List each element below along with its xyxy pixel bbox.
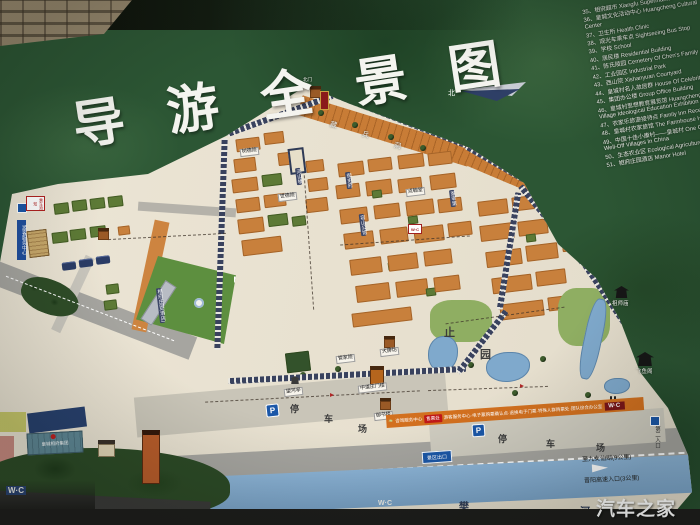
tour-bus <box>62 261 77 271</box>
tree-bed <box>51 231 68 244</box>
yushifu-sign: 御史府 <box>345 172 352 190</box>
group-building: 皇城相府集团 <box>26 431 83 456</box>
garden-pond <box>486 352 530 382</box>
bottom-shadow <box>0 509 700 525</box>
route-arrow <box>330 393 334 397</box>
dianhantang-sign: 点翰堂 <box>406 187 426 197</box>
second-entrance-icon <box>650 416 660 426</box>
tree <box>388 134 394 140</box>
left-wc-sign: W·C <box>6 486 26 495</box>
building-block <box>395 278 429 298</box>
dapaifang-icon <box>384 336 395 348</box>
building-block <box>367 157 392 173</box>
tree-grove <box>285 351 311 374</box>
parking-sign: P <box>265 403 279 417</box>
exit-guide-text: 景区出口 <box>427 453 447 461</box>
visitor-center-banner: 游客服务中心 <box>17 220 26 260</box>
courtyard <box>372 189 383 198</box>
building-block <box>349 256 383 276</box>
tree <box>335 366 341 372</box>
courtyard <box>526 233 537 242</box>
feiyuge-icon <box>636 352 654 366</box>
title-char: 游 <box>161 63 224 145</box>
building-block <box>405 198 435 216</box>
parking-char: 停 <box>498 432 507 445</box>
temple-icon <box>98 440 115 457</box>
title-char: 景 <box>349 35 412 117</box>
building-block <box>551 213 577 230</box>
building-block <box>427 151 452 167</box>
memorial-archway-icon <box>98 228 109 240</box>
ticket-office-badge: 售票处 <box>424 414 442 423</box>
brick-wall-corner <box>0 0 132 46</box>
title-char: 图 <box>443 21 506 103</box>
leaf-icon: ❧ <box>388 418 394 425</box>
building-block <box>423 248 453 266</box>
shudeyuan-sign: 树德院 <box>240 147 260 157</box>
second-entrance-label: 第二入口 <box>653 426 661 448</box>
tree-bed <box>53 202 69 215</box>
parking-sign: P <box>472 424 486 438</box>
group-building-text: 皇城相府集团 <box>27 440 83 449</box>
tour-bus <box>96 255 111 265</box>
building-block <box>355 282 391 303</box>
tree-bed <box>107 195 123 208</box>
route-arrow <box>520 384 524 388</box>
parking-char: 场 <box>596 441 605 454</box>
building-block <box>561 237 584 253</box>
building-block <box>307 177 328 192</box>
building-block <box>351 306 412 327</box>
tree <box>420 145 426 151</box>
zushimiao-icon <box>614 286 629 298</box>
parking-letter: P <box>476 426 482 435</box>
tree-bed <box>103 299 117 311</box>
building-block <box>397 152 425 169</box>
village-building <box>27 407 87 434</box>
tree-bed <box>71 199 87 212</box>
heshanlou-sign: 河山楼 <box>295 168 302 186</box>
building-block <box>231 176 259 193</box>
tour-bus <box>79 258 94 268</box>
village-yard <box>0 412 26 432</box>
cangbingdong-band-east <box>451 143 548 198</box>
building-block <box>477 198 509 217</box>
building-block <box>387 252 419 272</box>
courtyard <box>261 173 282 187</box>
watermark: 汽车之家 <box>596 494 676 521</box>
zushimiao-label: 祖师庙 <box>612 299 629 307</box>
parking-char: 场 <box>358 422 367 435</box>
building-block <box>241 236 283 257</box>
shideyuan-sign: 世德院 <box>278 192 298 202</box>
tree <box>512 390 518 396</box>
road-wc-label: W·C <box>378 500 392 507</box>
courtyard <box>267 213 288 227</box>
feiyuge-label: 飞鱼阁 <box>636 367 653 375</box>
tour-route <box>302 150 314 310</box>
direction-arrow <box>592 464 608 473</box>
zhongzaidi-sign: 冢宰第 <box>449 190 456 208</box>
building-block <box>543 190 571 207</box>
parking-char: 车 <box>324 412 333 425</box>
notice-sign: 乘车须知 <box>26 196 45 211</box>
building-block <box>433 274 461 292</box>
cangbingdong-char2: 兵 <box>361 129 370 140</box>
building-block <box>343 230 375 250</box>
dapaifang-sign: 大牌坊 <box>380 347 400 357</box>
inner-wc-sign: W·C <box>408 224 422 234</box>
building-block <box>237 216 265 234</box>
pagoda-tower <box>142 430 160 484</box>
tree-bed <box>89 197 105 210</box>
group-logo <box>51 434 56 439</box>
tree <box>540 356 546 362</box>
cangbingdong-char3: 洞 <box>393 140 402 151</box>
building-block <box>235 197 261 214</box>
visitor-banner-text: 游客服务中心 <box>21 225 27 255</box>
service-bar-text1: 咨询服务中心 <box>395 416 422 424</box>
tree-bed <box>105 283 119 295</box>
zhiyuan-char1: 止 <box>444 324 455 340</box>
building-block <box>429 172 457 190</box>
service-bar-wc: W·C <box>604 401 625 410</box>
yushulou-icon <box>380 398 391 410</box>
tree <box>585 392 591 398</box>
building-block <box>373 202 401 219</box>
parking-char: 车 <box>546 437 555 450</box>
guanjiayuan-sign: 管家院 <box>336 354 356 364</box>
exit-guide-sign: 景区出口 <box>422 450 453 464</box>
notice-sign-text: 乘车须知 <box>33 198 44 210</box>
building-block <box>117 225 130 235</box>
garden-pond <box>604 378 630 394</box>
legend: 35、相府超市 Xiangfu Supermarket 36、皇城文化活动中心 … <box>582 0 700 172</box>
building-block <box>491 274 533 295</box>
parking-char: 停 <box>290 402 299 415</box>
zhiyuan-char2: 园 <box>480 346 491 362</box>
photo-of-panorama-map-sign: 樊 河 相府庄园(酒店) 乘车须知 游客服务中心 <box>0 0 700 525</box>
building-block <box>233 157 257 174</box>
fountain <box>194 298 204 308</box>
courtyard <box>291 215 306 227</box>
building-block <box>535 268 567 287</box>
title-char: 全 <box>255 49 318 131</box>
tree-bed <box>69 228 86 241</box>
building-block <box>305 159 324 173</box>
title-char: 导 <box>67 77 130 159</box>
parking-letter: P <box>269 406 275 416</box>
building-block <box>305 197 329 214</box>
visitor-center-building <box>26 229 49 258</box>
building-block <box>525 242 559 262</box>
